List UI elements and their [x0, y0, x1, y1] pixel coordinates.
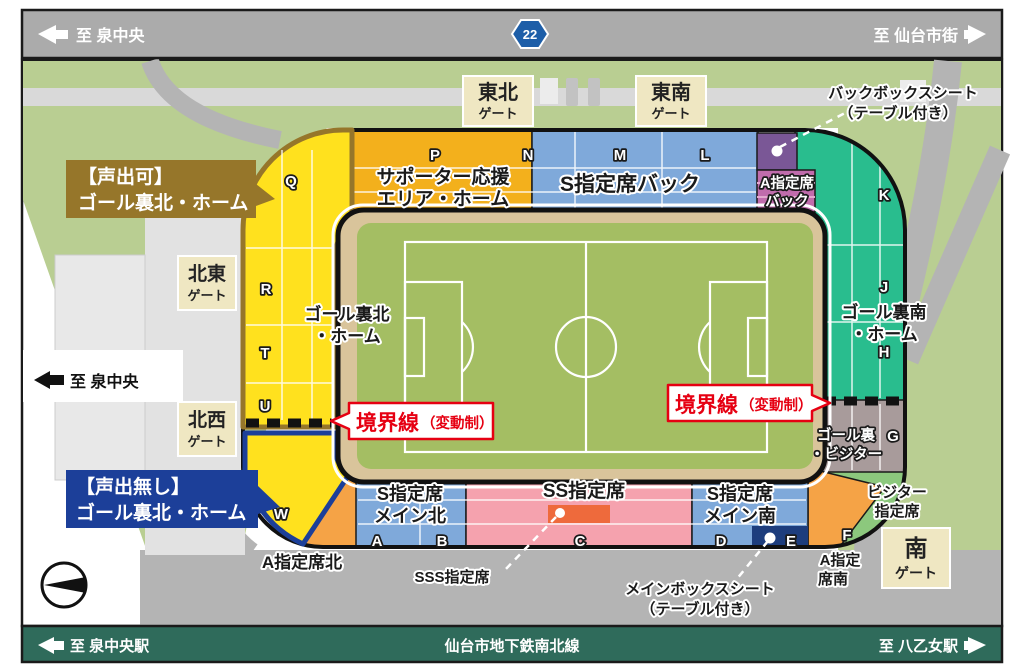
block-letter-a: A: [372, 533, 383, 550]
boundary-label-west-sub: （変動制）: [421, 414, 494, 432]
gate-hokuto-suffix: ゲート: [187, 288, 226, 303]
label-back-box-2: （テーブル付き）: [838, 104, 957, 122]
boundary-label-east-sub: （変動制）: [740, 396, 813, 414]
label-s-back: S指定席バック: [560, 172, 700, 196]
pillar: [566, 78, 578, 106]
top-road-left-label: 至 泉中央: [76, 26, 145, 45]
rail-right-label: 至 八乙女駅: [879, 637, 959, 655]
block-letter-c: C: [575, 533, 586, 550]
gate-tonan-name: 東南: [651, 81, 691, 104]
voice-none-bubble: 【声出無し】 ゴール裏北・ホーム: [66, 470, 280, 528]
boundary-label-east-main: 境界線: [675, 393, 738, 417]
section-s-back[interactable]: [532, 126, 758, 216]
block-letter-q: Q: [285, 173, 297, 190]
pitch: [333, 205, 830, 487]
top-road-right-label: 至 仙台市街: [874, 26, 958, 45]
label-supporter-2: エリア・ホーム: [377, 189, 509, 210]
compass-icon: [42, 563, 86, 607]
voice-ok-line2: ゴール裏北・ホーム: [78, 191, 248, 214]
gate-hokuto-name: 北東: [188, 262, 226, 285]
label-main-box-1: メインボックスシート: [625, 581, 775, 598]
label-ss: SS指定席: [543, 479, 625, 502]
pillar: [588, 78, 600, 106]
stadium-map: P N M L Q R T U W K J H G A B C D E F サポ…: [0, 0, 1024, 669]
bottom-rail-bar: 至 泉中央駅 仙台市地下鉄南北線 至 八乙女駅: [22, 626, 1002, 662]
block-letter-h: H: [879, 344, 890, 361]
block-letter-e: E: [786, 533, 796, 550]
label-visitor-2: 指定席: [874, 502, 919, 520]
block-letter-g: G: [887, 428, 899, 445]
label-sss: SSS指定席: [414, 568, 489, 586]
label-a-south-2: 席南: [818, 570, 848, 588]
route-badge-number: 22: [523, 27, 537, 42]
block-letter-f: F: [842, 527, 851, 544]
block-letter-p: P: [430, 147, 440, 164]
block-letter-r: R: [261, 281, 272, 298]
gate-minami-suffix: ゲート: [895, 565, 937, 581]
west-road-text: 至 泉中央: [70, 372, 139, 391]
label-supporter-1: サポーター応援: [376, 165, 510, 188]
label-s-main-north-2: メイン北: [374, 506, 446, 526]
block-letter-w: W: [274, 506, 289, 523]
label-a-south-1: A指定: [820, 551, 861, 569]
label-a-back-2: バック: [765, 193, 809, 210]
label-s-main-south-1: S指定席: [707, 483, 773, 504]
label-a-back-1: A指定席: [760, 174, 814, 192]
label-a-north: A指定席北: [262, 552, 342, 572]
label-back-box-1: バックボックスシート: [828, 85, 978, 102]
rail-left-label: 至 泉中央駅: [70, 637, 150, 655]
block-letter-m: M: [614, 147, 627, 164]
gate-hokusei-suffix: ゲート: [187, 434, 226, 449]
voice-ok-line1: 【声出可】: [78, 165, 173, 188]
gate-tonan-suffix: ゲート: [651, 106, 690, 121]
label-visitor-1: ビジター: [867, 484, 927, 501]
voice-none-line1: 【声出無し】: [76, 475, 190, 498]
block-letter-n: N: [523, 147, 534, 164]
label-goal-visitor-1: ゴール裏: [817, 426, 875, 444]
label-goal-north-1: ゴール裏北: [305, 304, 390, 324]
label-goal-south-1: ゴール裏南: [842, 302, 927, 322]
block-letter-d: D: [716, 533, 727, 550]
label-goal-north-2: ・ホーム: [313, 327, 381, 346]
rail-center-label: 仙台市地下鉄南北線: [444, 637, 579, 655]
label-goal-visitor-2: ・ビジター: [810, 446, 882, 463]
label-s-main-north-1: S指定席: [377, 483, 443, 504]
gate-minami-name: 南: [905, 535, 928, 561]
label-main-box-2: （テーブル付き）: [640, 600, 759, 618]
block-letter-l: L: [700, 147, 709, 164]
gate-tohoku-name: 東北: [478, 81, 518, 104]
gate-tohoku-suffix: ゲート: [478, 106, 517, 121]
gate-hokusei-name: 北西: [188, 409, 226, 431]
block-letter-u: U: [260, 398, 271, 415]
block-letter-b: B: [437, 533, 448, 550]
top-road-bar: 至 泉中央 22 至 仙台市街: [22, 10, 1002, 58]
crosswalk-left: [540, 78, 558, 104]
boundary-label-west: 境界線 （変動制）: [331, 403, 494, 439]
block-letter-k: K: [879, 187, 890, 204]
west-road-label: 至 泉中央: [34, 371, 139, 391]
boundary-label-west-main: 境界線: [356, 411, 419, 435]
voice-ok-bubble: 【声出可】 ゴール裏北・ホーム: [66, 160, 275, 218]
label-s-main-south-2: メイン南: [704, 505, 776, 526]
boundary-label-east: 境界線 （変動制）: [668, 385, 830, 421]
sss-location-dot: [555, 508, 565, 518]
block-letter-j: J: [880, 279, 888, 296]
block-letter-t: T: [260, 345, 269, 362]
label-goal-south-2: ・ホーム: [850, 325, 918, 344]
voice-none-line2: ゴール裏北・ホーム: [76, 501, 246, 524]
